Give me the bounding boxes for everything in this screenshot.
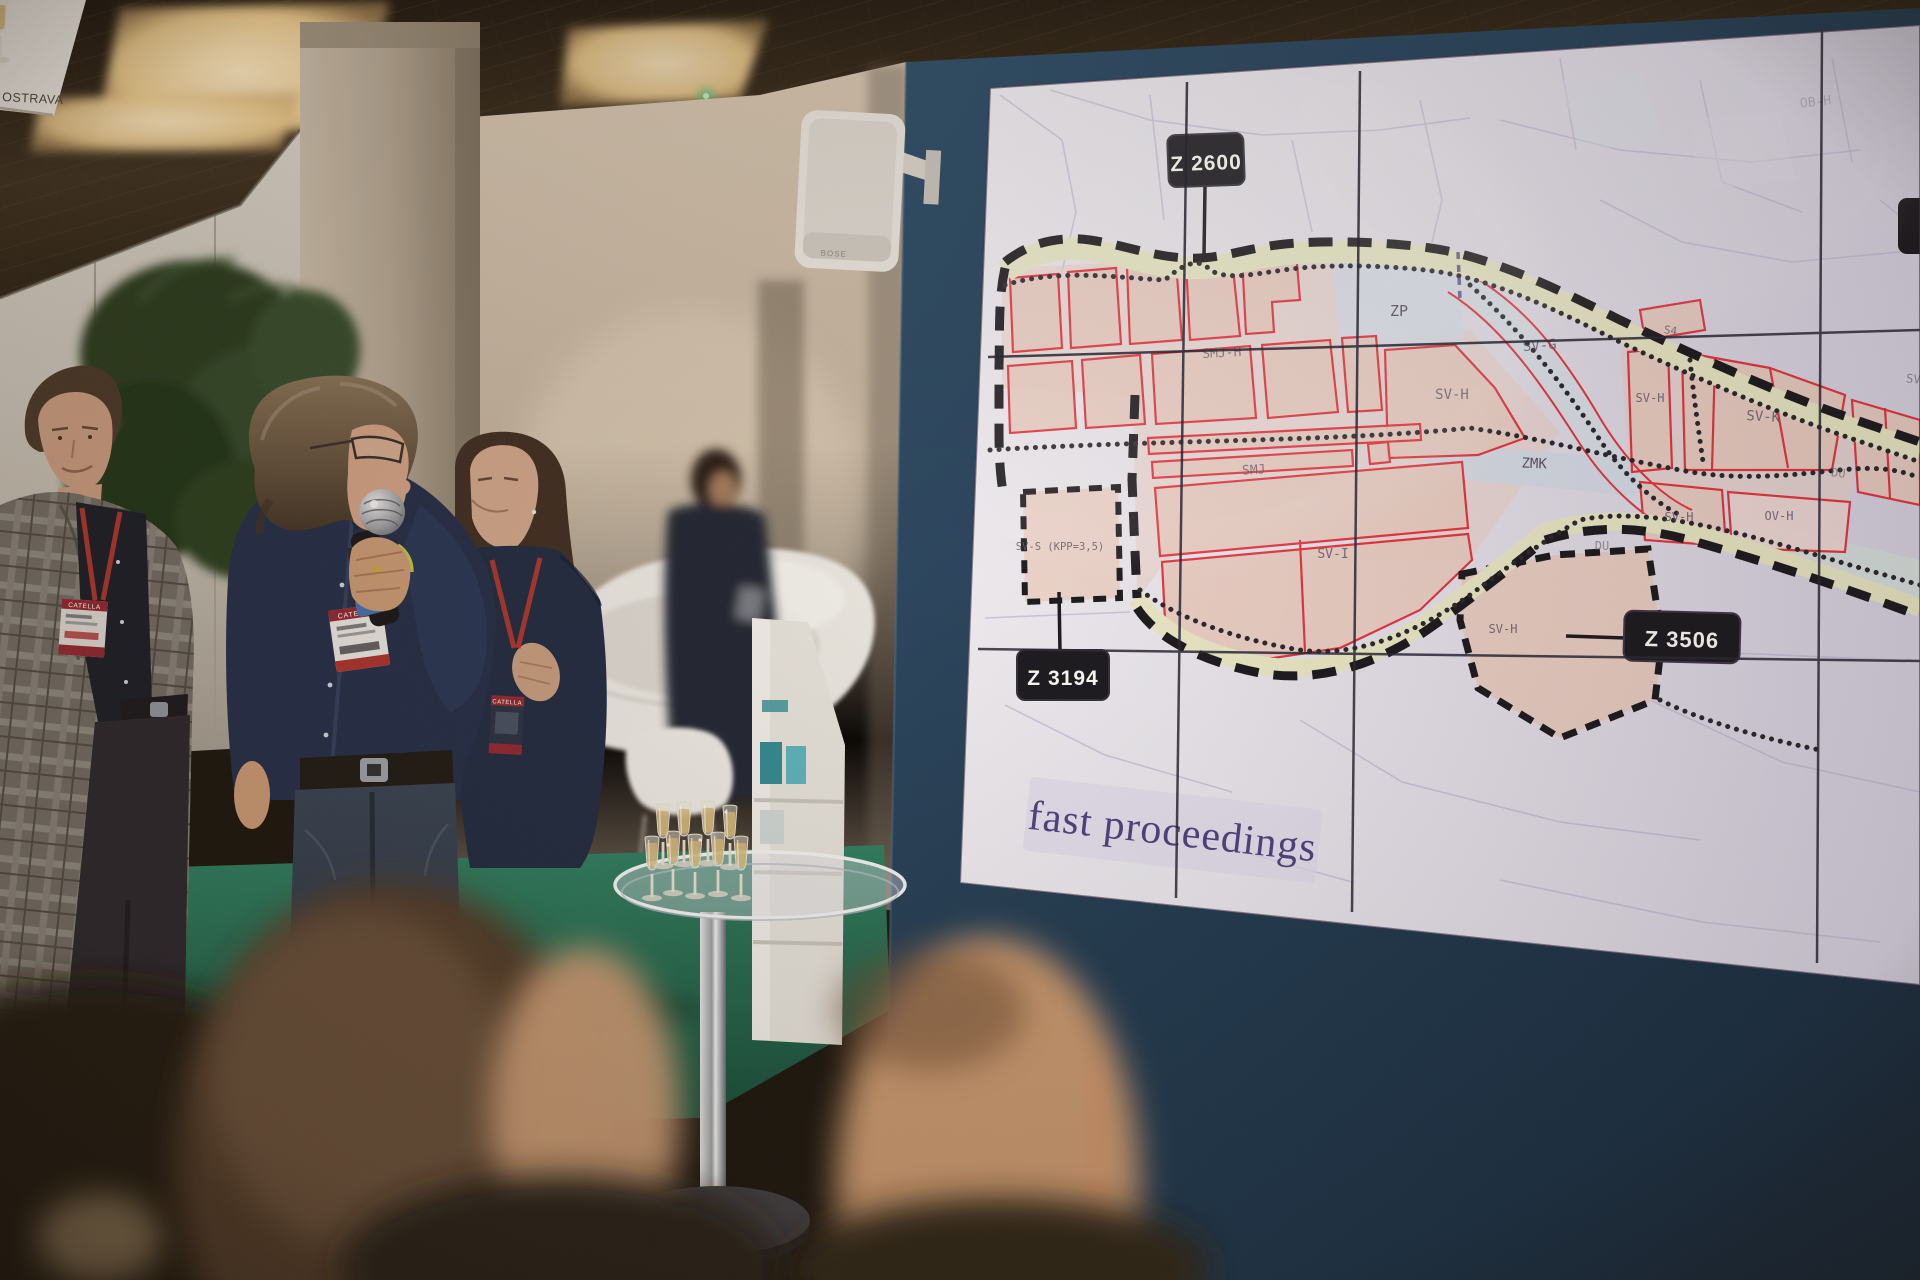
conference-photo-scene: OSTRAVA (0, 0, 1920, 1280)
